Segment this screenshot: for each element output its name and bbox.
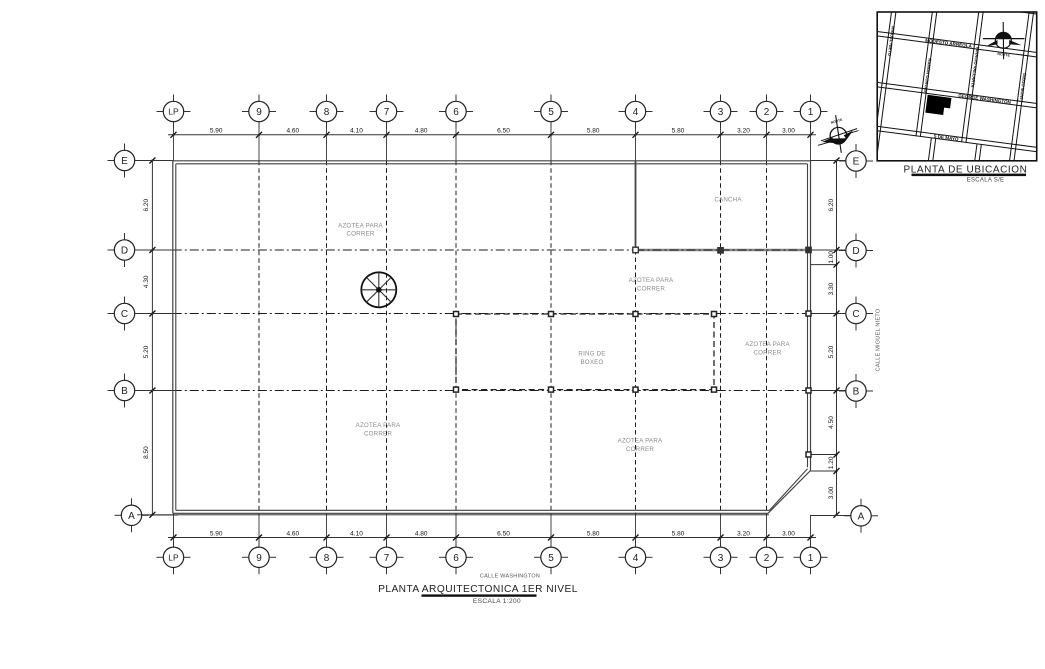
- svg-text:6: 6: [453, 107, 459, 118]
- svg-text:3.20: 3.20: [737, 530, 750, 537]
- svg-text:6: 6: [453, 553, 459, 564]
- svg-text:5.90: 5.90: [210, 128, 223, 135]
- svg-text:CORRER: CORRER: [753, 349, 781, 356]
- svg-text:B: B: [853, 387, 860, 398]
- svg-text:5.80: 5.80: [587, 128, 600, 135]
- svg-text:BOXEO: BOXEO: [580, 359, 603, 366]
- svg-text:CORRER: CORRER: [346, 231, 374, 238]
- svg-text:5.90: 5.90: [210, 530, 223, 537]
- svg-text:4: 4: [633, 553, 639, 564]
- svg-text:9: 9: [256, 107, 262, 118]
- svg-text:CORRER: CORRER: [637, 285, 665, 292]
- svg-text:A: A: [858, 511, 865, 522]
- svg-text:4.50: 4.50: [828, 416, 835, 429]
- svg-text:3.20: 3.20: [737, 128, 750, 135]
- svg-text:CALLE MIGUEL NIETO: CALLE MIGUEL NIETO: [876, 308, 882, 371]
- svg-text:A: A: [128, 511, 135, 522]
- svg-text:4.60: 4.60: [286, 530, 299, 537]
- svg-text:6.20: 6.20: [143, 198, 150, 211]
- svg-text:3.00: 3.00: [782, 128, 795, 135]
- svg-text:1.20: 1.20: [828, 456, 835, 469]
- svg-text:CORRER: CORRER: [626, 446, 654, 453]
- svg-text:1: 1: [808, 107, 814, 118]
- svg-text:CORRER: CORRER: [364, 430, 392, 437]
- svg-text:5.20: 5.20: [828, 345, 835, 358]
- svg-text:AZOTEA PARA: AZOTEA PARA: [629, 277, 674, 284]
- svg-text:4.10: 4.10: [350, 128, 363, 135]
- svg-text:3.30: 3.30: [828, 282, 835, 295]
- svg-text:5: 5: [548, 553, 554, 564]
- svg-text:CANCHA: CANCHA: [714, 197, 742, 204]
- svg-text:C: C: [121, 309, 128, 320]
- svg-text:3.00: 3.00: [828, 486, 835, 499]
- svg-text:ESCALA 1:200: ESCALA 1:200: [473, 598, 521, 605]
- svg-text:D: D: [121, 246, 128, 257]
- svg-text:6.20: 6.20: [828, 198, 835, 211]
- svg-text:6.50: 6.50: [497, 128, 510, 135]
- svg-text:4.80: 4.80: [415, 128, 428, 135]
- svg-text:3.00: 3.00: [782, 530, 795, 537]
- svg-text:4: 4: [633, 107, 639, 118]
- svg-text:AZOTEA PARA: AZOTEA PARA: [356, 422, 401, 429]
- svg-text:5.80: 5.80: [587, 530, 600, 537]
- svg-text:C: C: [852, 309, 859, 320]
- svg-text:4.60: 4.60: [286, 128, 299, 135]
- svg-text:E: E: [853, 157, 860, 168]
- svg-text:7: 7: [384, 553, 390, 564]
- svg-text:4.10: 4.10: [350, 530, 363, 537]
- svg-text:LP: LP: [168, 552, 179, 562]
- svg-text:8: 8: [324, 553, 330, 564]
- svg-text:3: 3: [718, 553, 724, 564]
- svg-text:CALLE WASHINGTON: CALLE WASHINGTON: [480, 574, 540, 580]
- svg-text:LP: LP: [168, 107, 179, 117]
- svg-text:9: 9: [256, 553, 262, 564]
- svg-text:4.30: 4.30: [143, 275, 150, 288]
- svg-text:AZOTEA PARA: AZOTEA PARA: [618, 438, 663, 445]
- svg-text:2: 2: [764, 553, 770, 564]
- svg-text:B: B: [121, 386, 128, 397]
- svg-text:8.50: 8.50: [143, 446, 150, 459]
- svg-text:1.00: 1.00: [828, 251, 835, 264]
- svg-text:7: 7: [384, 107, 390, 118]
- svg-text:5.80: 5.80: [672, 530, 685, 537]
- svg-text:8: 8: [324, 107, 330, 118]
- svg-text:5: 5: [548, 107, 554, 118]
- svg-text:6.50: 6.50: [497, 530, 510, 537]
- svg-text:E: E: [121, 156, 128, 167]
- svg-text:2: 2: [764, 107, 770, 118]
- svg-text:5.20: 5.20: [143, 345, 150, 358]
- svg-text:ESCALA S/E: ESCALA S/E: [967, 177, 1005, 183]
- svg-text:1: 1: [808, 553, 814, 564]
- svg-text:AZOTEA PARA: AZOTEA PARA: [745, 341, 790, 348]
- svg-text:4.80: 4.80: [415, 530, 428, 537]
- svg-text:PLANTA ARQUITECTONICA 1ER NIVE: PLANTA ARQUITECTONICA 1ER NIVEL: [378, 584, 578, 595]
- svg-text:AZOTEA PARA: AZOTEA PARA: [338, 222, 383, 229]
- svg-text:D: D: [852, 246, 859, 257]
- svg-text:5.80: 5.80: [672, 128, 685, 135]
- svg-text:3: 3: [718, 107, 724, 118]
- svg-text:RING DE: RING DE: [578, 351, 605, 358]
